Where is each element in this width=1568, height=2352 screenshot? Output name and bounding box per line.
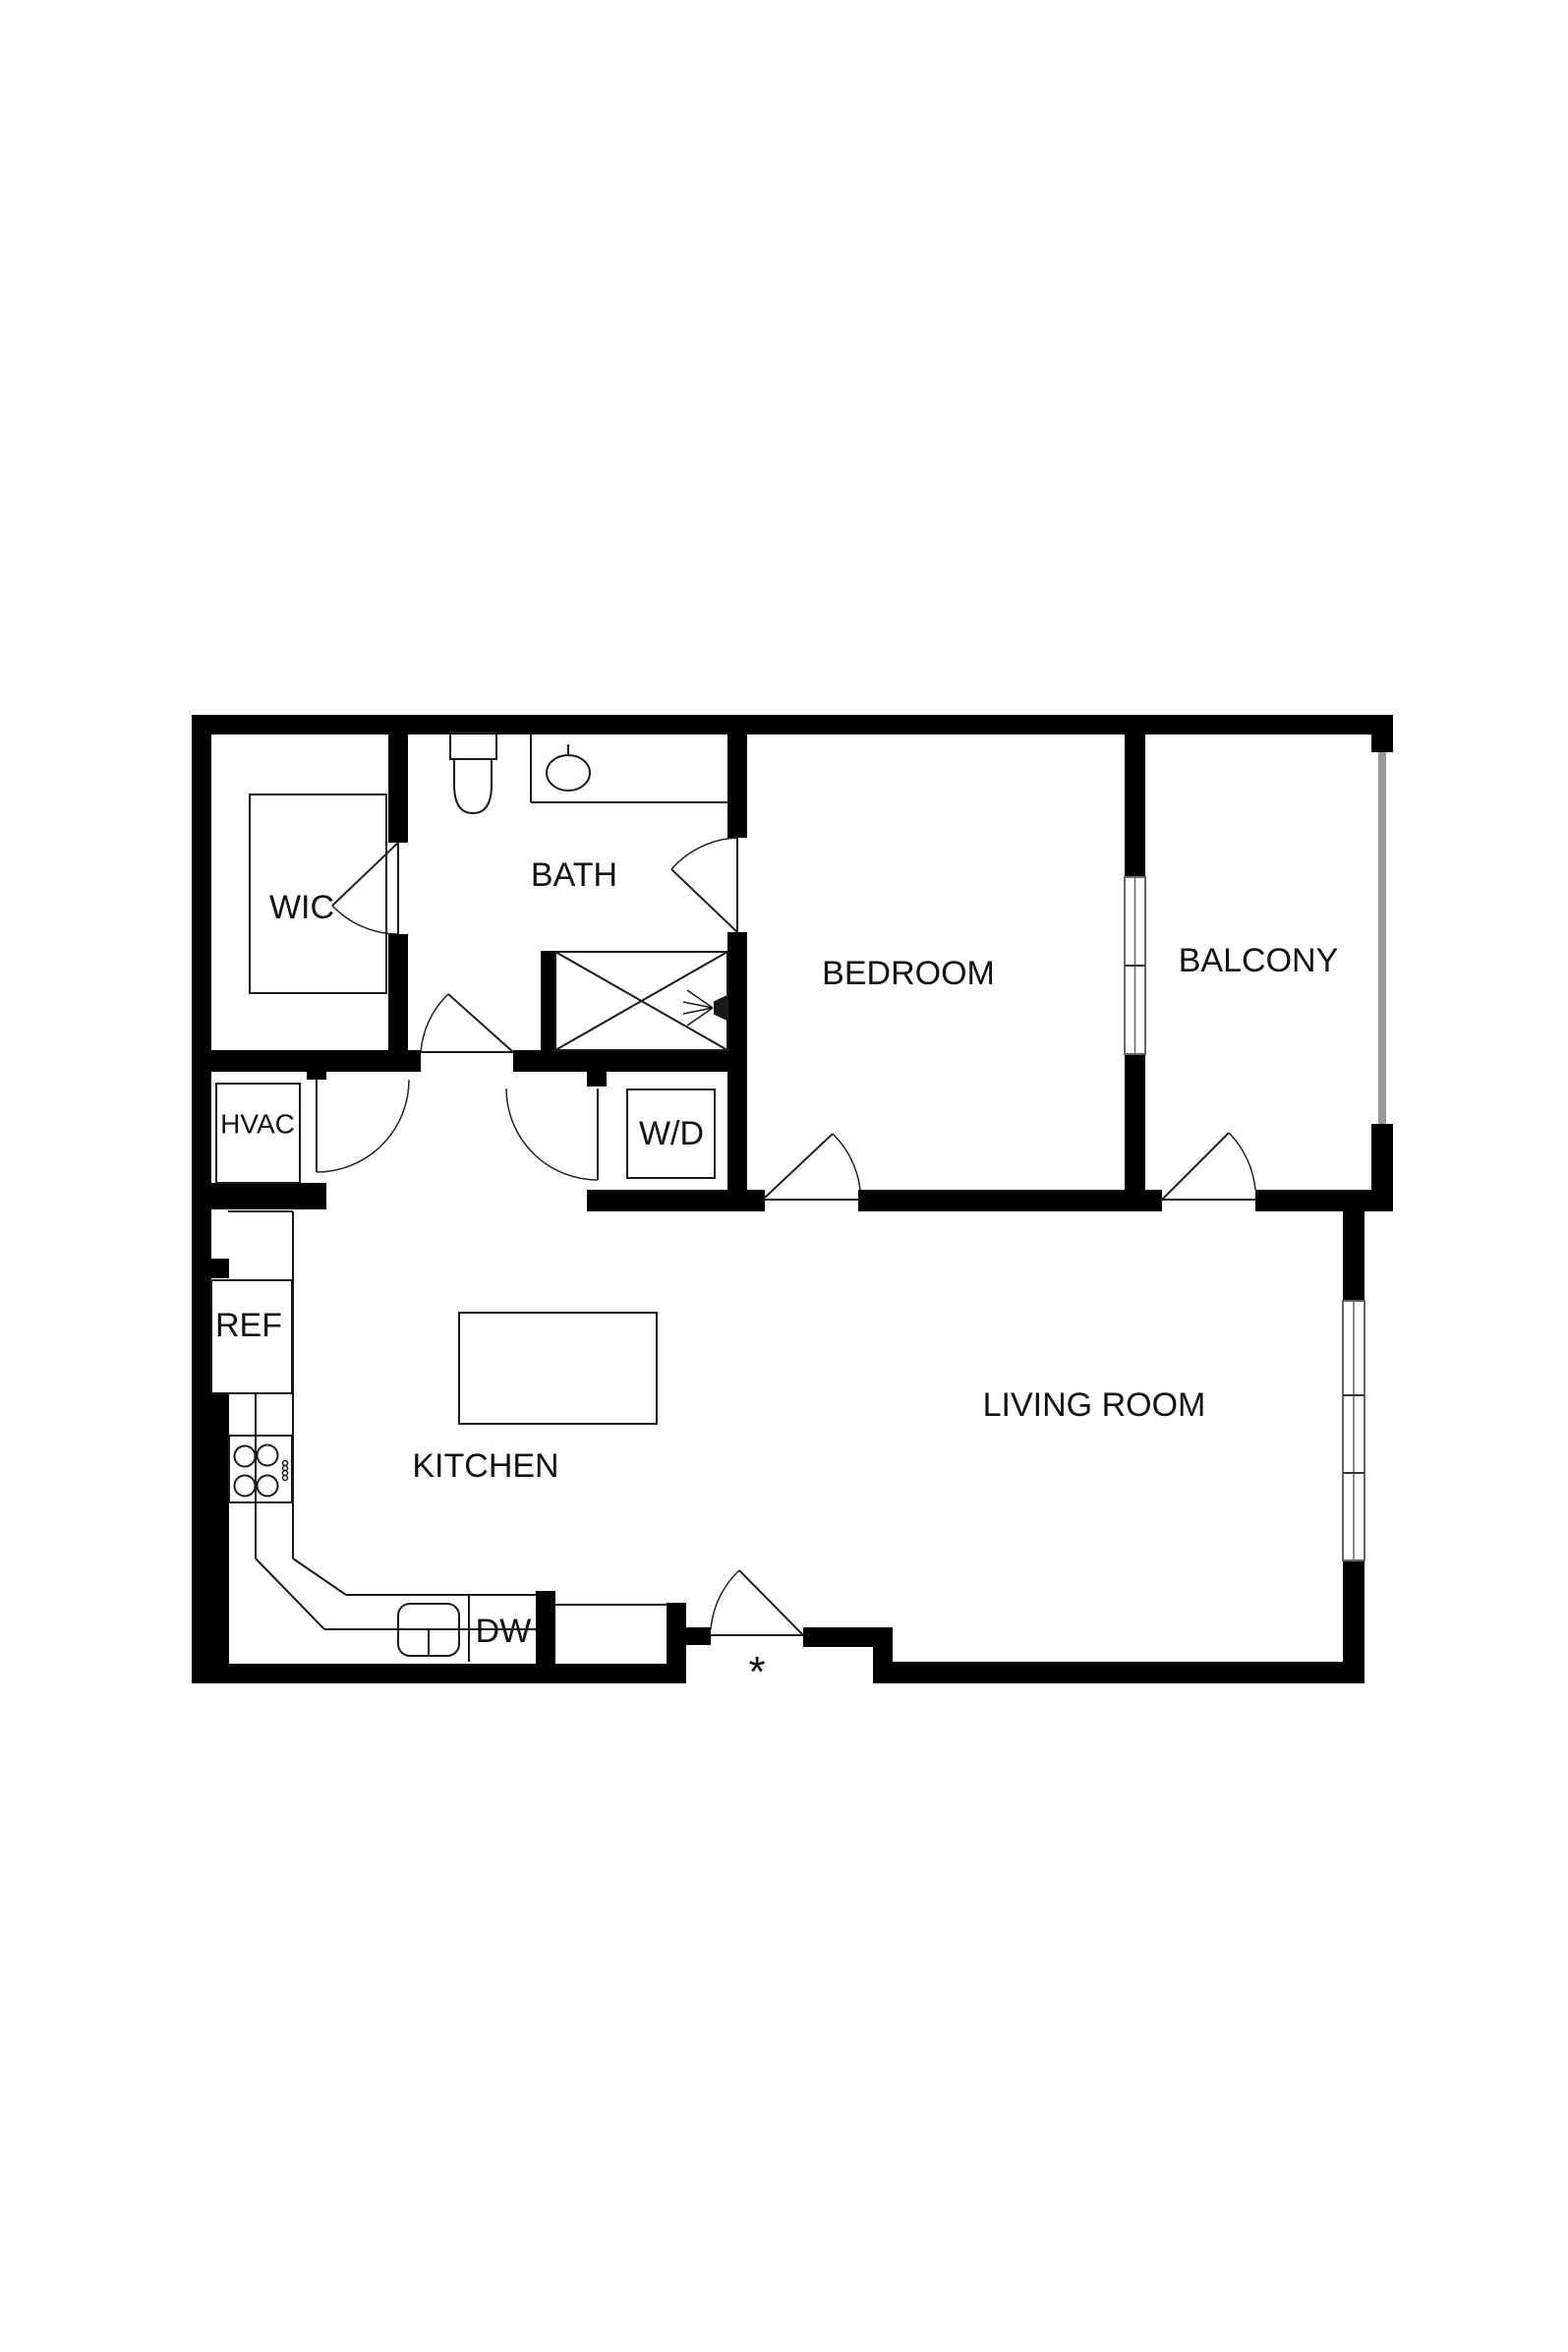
counter-corner-diagonal-outer	[293, 1558, 346, 1595]
bath-bedroom-door-leaf	[671, 869, 737, 932]
label-dw: DW	[476, 1613, 532, 1650]
label-living-room: LIVING ROOM	[983, 1386, 1206, 1424]
bedroom-door-leaf	[765, 1134, 833, 1198]
label-bedroom: BEDROOM	[822, 955, 995, 992]
wall-shower-left-stub	[541, 951, 555, 1050]
wall-bed-balc-divider-lower	[1125, 1054, 1145, 1211]
floorplan-svg: WICBATHBEDROOMBALCONYHVACW/DREFKITCHENDW…	[0, 0, 1568, 2352]
label-ref: REF	[215, 1307, 282, 1344]
label-wd: W/D	[639, 1115, 704, 1152]
bath-bedroom-door-arc	[671, 838, 737, 869]
wall-bedroom-left	[727, 932, 747, 1211]
entry-door-arc	[711, 1570, 739, 1629]
wd-door-arc	[506, 1088, 598, 1180]
label-hvac: HVAC	[220, 1109, 295, 1140]
wall-hvac-bottom	[192, 1183, 326, 1209]
label-wic: WIC	[269, 889, 334, 926]
wic-door-leaf	[332, 843, 398, 906]
wic-door-arc	[332, 906, 398, 934]
bath-sink-basin	[547, 755, 590, 791]
wall-balcony-right-block	[1371, 1124, 1393, 1211]
wall-kitchen-bottom	[192, 1664, 686, 1683]
wall-entry-left-stub	[686, 1627, 711, 1645]
burner	[235, 1476, 256, 1497]
wall-bathdoor-right	[513, 1050, 555, 1072]
bath-hall-door-leaf	[448, 994, 513, 1052]
balcony-railing	[1378, 752, 1386, 1124]
balcony-door-arc	[1229, 1133, 1255, 1190]
label-bath: BATH	[531, 856, 617, 894]
wall-wd-left-stub	[587, 1065, 607, 1087]
burner	[258, 1445, 278, 1466]
entry-door-leaf	[739, 1570, 803, 1635]
wall-ref-jog	[192, 1259, 229, 1278]
wall-shower-bottom	[555, 1050, 727, 1072]
burner	[235, 1446, 256, 1467]
bedroom-door-arc	[833, 1134, 860, 1190]
kitchen-island	[459, 1313, 657, 1424]
wall-bed-balc-divider-upper	[1125, 735, 1145, 877]
wall-balcony-bottom	[1255, 1190, 1371, 1211]
wall-top	[192, 715, 1393, 735]
burner	[258, 1476, 278, 1497]
wall-entry-threshold-right	[803, 1627, 893, 1647]
balcony-door-leaf	[1162, 1133, 1229, 1200]
label-kitchen: KITCHEN	[412, 1447, 558, 1485]
bath-hall-door-arc	[421, 994, 448, 1052]
floorplan-page: WICBATHBEDROOMBALCONYHVACW/DREFKITCHENDW…	[0, 0, 1568, 2352]
counter-corner-diagonal-inner	[256, 1558, 324, 1629]
wall-wic-right-upper	[388, 735, 408, 843]
wall-hvac-right-stub	[307, 1068, 326, 1080]
wall-pantry-right-stub	[667, 1603, 686, 1664]
wall-wd-bottom	[587, 1190, 765, 1211]
wall-bedroom-bottom	[858, 1190, 1162, 1211]
wall-pantry-left-stub	[536, 1591, 555, 1664]
wall-entry-step	[873, 1647, 893, 1662]
shower-head	[715, 996, 727, 1020]
label-balcony: BALCONY	[1179, 942, 1339, 979]
wall-wic-bottom	[192, 1050, 421, 1072]
wall-wic-right-lower	[388, 934, 408, 1050]
wall-top-right-corner	[1371, 735, 1393, 752]
hvac-door-arc	[317, 1080, 409, 1172]
wall-living-right-upper	[1343, 1211, 1365, 1301]
toilet-bowl	[454, 759, 492, 813]
stove-knob	[283, 1476, 288, 1481]
wall-living-bottom	[873, 1662, 1365, 1683]
toilet-tank	[450, 733, 496, 759]
label-entry-asterisk: *	[748, 1648, 765, 1696]
wall-kitchen-left-thick	[192, 1393, 229, 1664]
wall-bath-bedroom-upper	[727, 735, 747, 838]
